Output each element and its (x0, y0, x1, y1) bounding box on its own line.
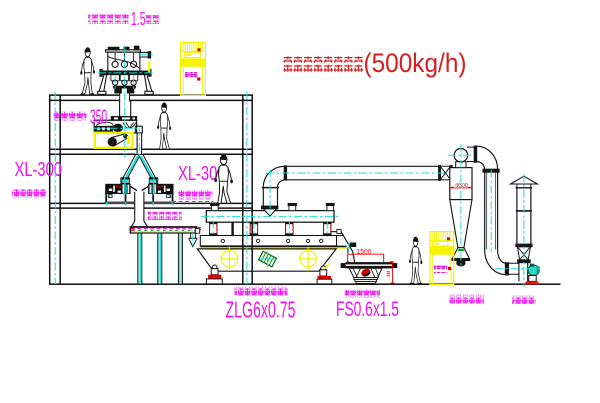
svg-text:FS0.6x1.5: FS0.6x1.5 (336, 298, 399, 321)
svg-text:1500: 1500 (357, 248, 372, 255)
svg-text:1.5: 1.5 (131, 9, 146, 29)
svg-text:ZLG6x0.75: ZLG6x0.75 (226, 297, 296, 323)
svg-text:350: 350 (90, 106, 107, 129)
svg-text:(500kg/h): (500kg/h) (364, 48, 467, 78)
svg-text:Φ500: Φ500 (455, 183, 468, 189)
